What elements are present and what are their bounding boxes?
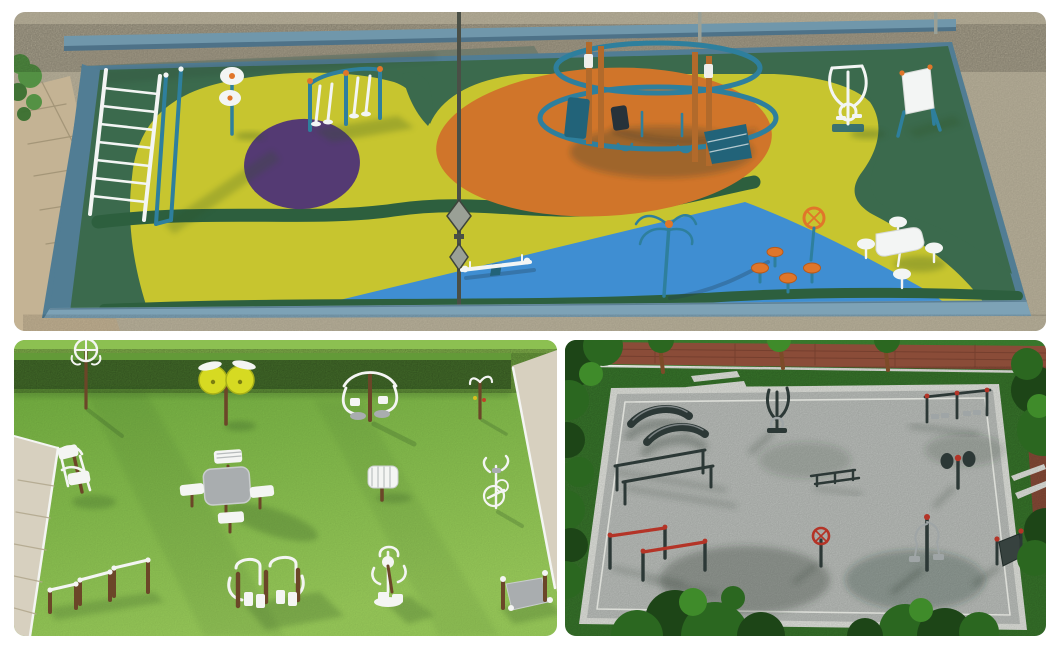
pole-behind-wall [698,12,702,42]
gravel-court-scene [565,340,1046,636]
pole-behind-wall [934,12,938,34]
render-lawn-gym [14,340,557,636]
lawn-gym-scene [14,340,557,636]
render-colorful-playground [14,12,1046,331]
climb-panel [564,97,590,139]
swing-seat [610,105,629,131]
colorful-playground-scene [14,12,1046,331]
render-gravel-calisthenics-court [565,340,1046,636]
lawn [14,340,557,636]
playground-field [42,42,1032,320]
